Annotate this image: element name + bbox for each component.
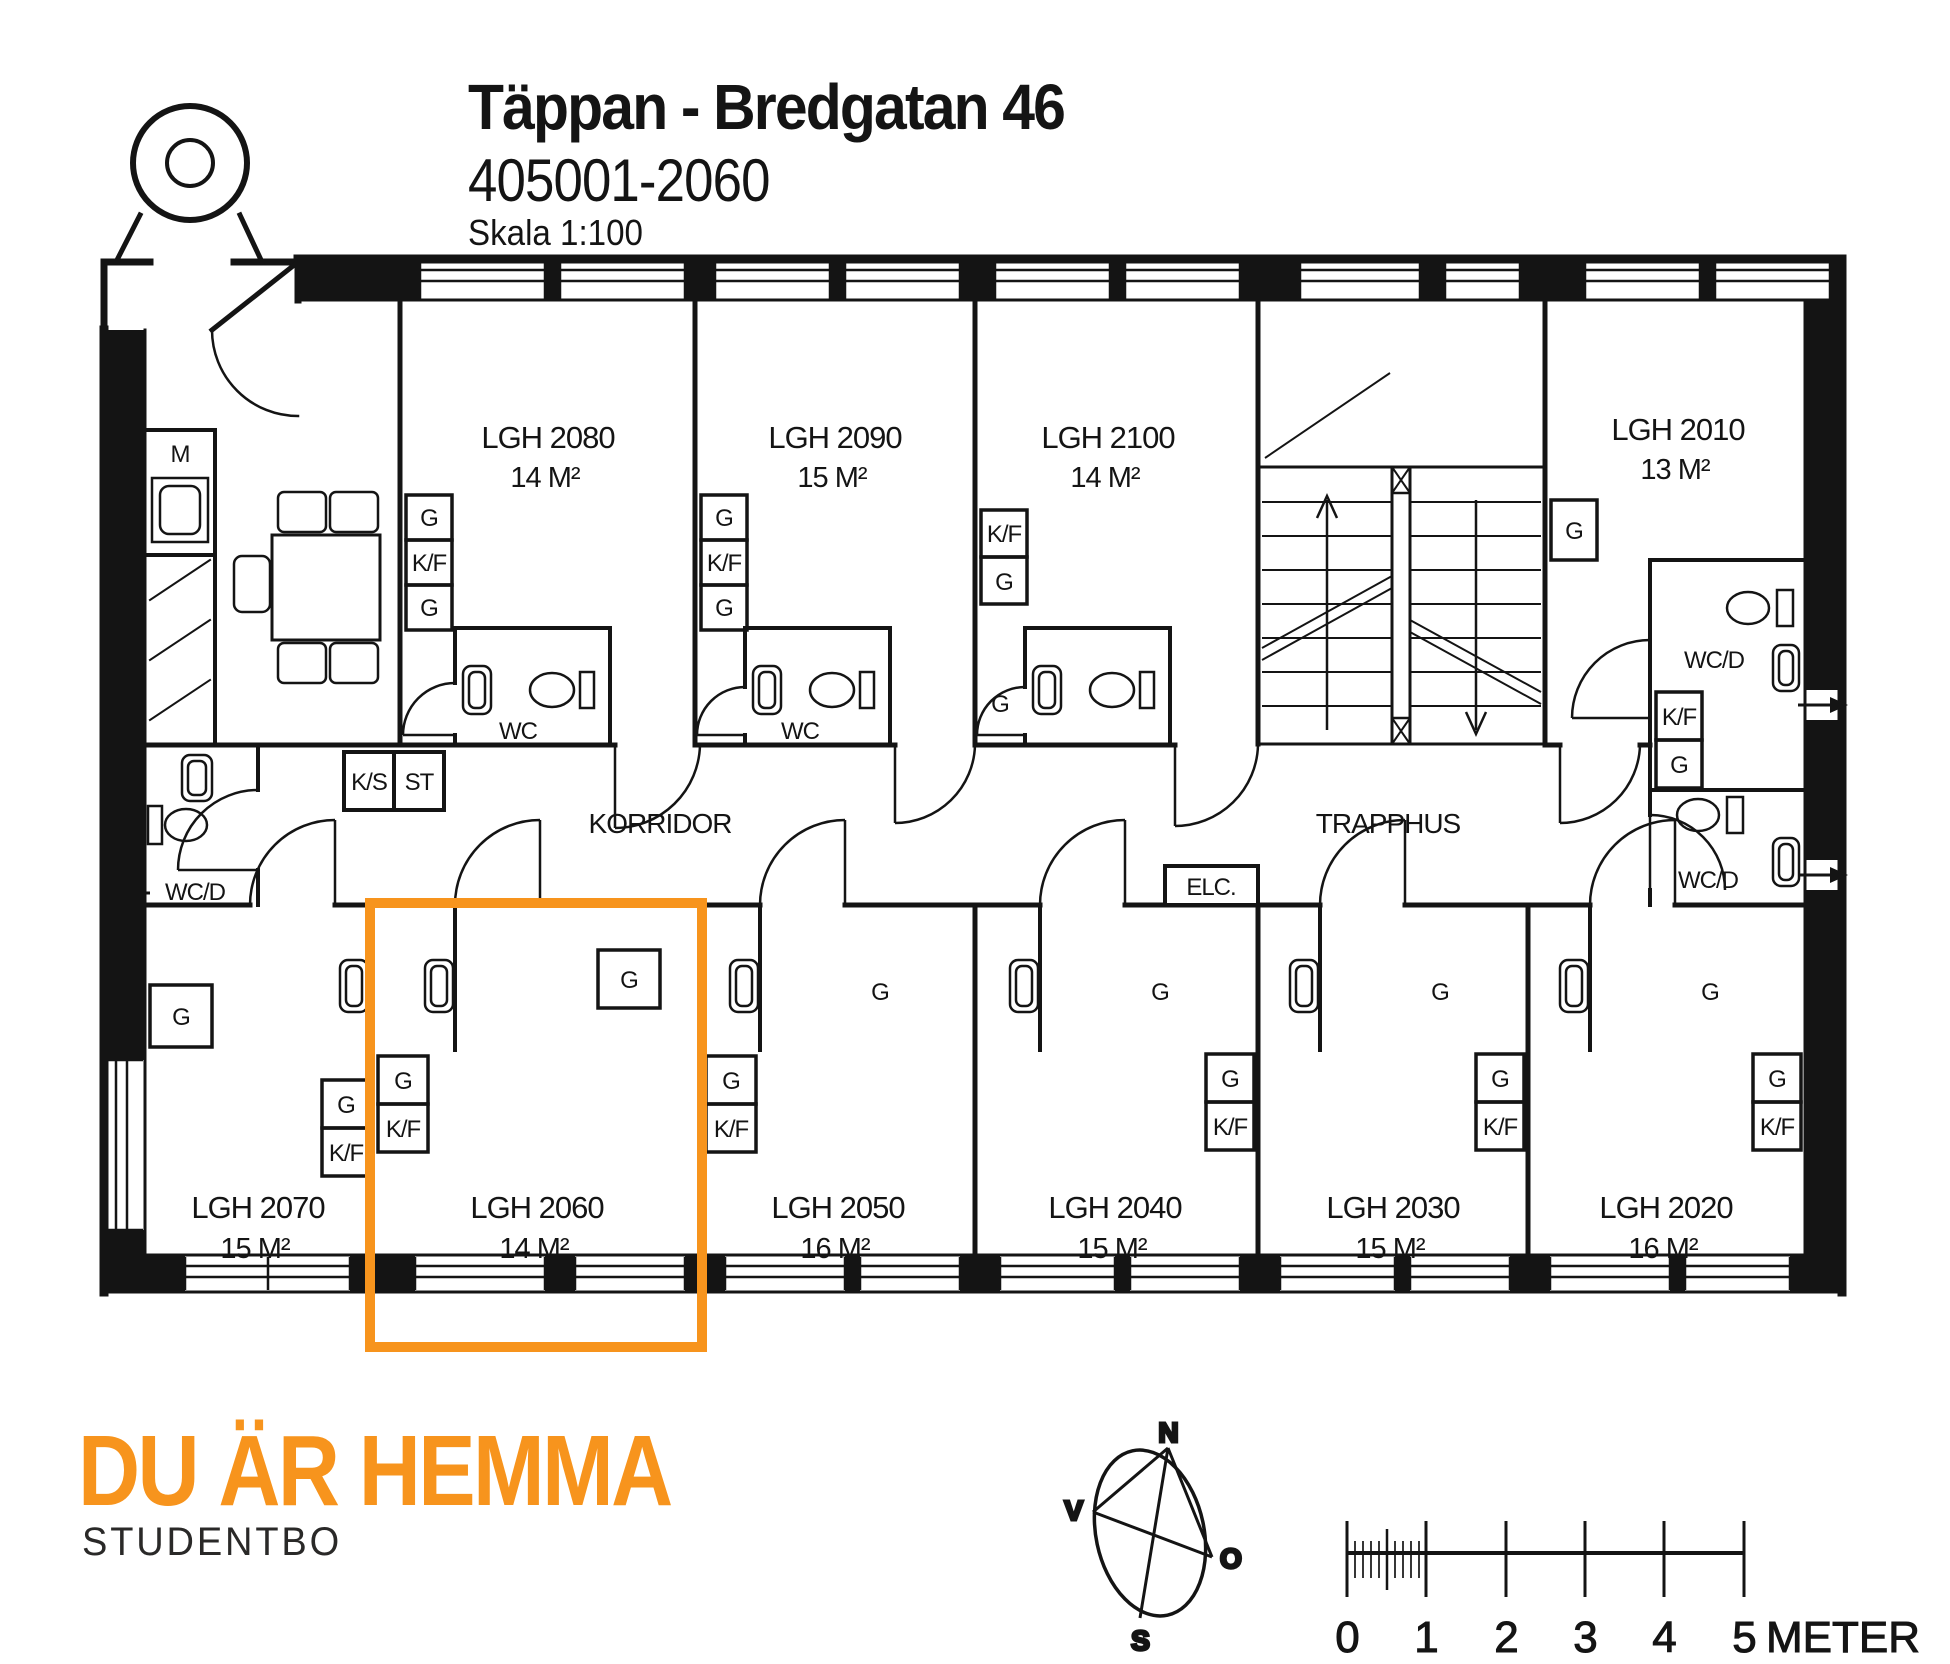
scale-tick-5: 5: [1732, 1613, 1755, 1662]
wcd-right-label: WC/D: [1678, 867, 1739, 894]
vestibule-door-arc: [212, 330, 298, 416]
svg-text:LGH 2030: LGH 2030: [1326, 1190, 1460, 1225]
closet-g-label: G: [1491, 1066, 1509, 1093]
compass-east-label: O: [1220, 1543, 1241, 1574]
closet-g-label: G: [722, 1068, 740, 1095]
svg-text:14 M²: 14 M²: [1070, 462, 1140, 494]
closet-kf-label: K/F: [1483, 1114, 1518, 1141]
chimney-round-element: [116, 106, 262, 262]
closet-g-label: G: [337, 1092, 355, 1119]
stair-break-lines: [1262, 373, 1541, 704]
svg-text:LGH 2050: LGH 2050: [771, 1190, 905, 1225]
compass: N V O S: [1064, 1417, 1241, 1656]
svg-text:LGH 2040: LGH 2040: [1048, 1190, 1182, 1225]
window-row-top: [420, 261, 1830, 299]
scale-bar: 0 1 2 3 4 5 METER: [1335, 1521, 1920, 1662]
closet-g-label: G: [620, 967, 638, 994]
closet-kf-label: K/F: [329, 1140, 364, 1167]
svg-text:LGH 2090: LGH 2090: [768, 420, 902, 455]
svg-text:14 M²: 14 M²: [510, 462, 580, 494]
scale-unit-label: METER: [1766, 1613, 1920, 1662]
apartment-label-lgh2080: LGH 2080 14 M²: [481, 420, 615, 494]
toilet-wc-2100: [1090, 672, 1154, 708]
closet-kf-label: K/F: [412, 550, 447, 577]
brand-sublabel: STUDENTBO: [82, 1520, 342, 1565]
closet-kf-label: K/F: [1213, 1114, 1248, 1141]
m-room-label: M: [171, 441, 190, 468]
compass-south-label: S: [1131, 1625, 1149, 1656]
vestibule-diagonal-wall: [212, 262, 298, 330]
closet-kf-label: K/F: [386, 1116, 421, 1143]
svg-text:LGH 2020: LGH 2020: [1599, 1190, 1733, 1225]
closet-g-label: G: [172, 1004, 190, 1031]
svg-text:LGH 2010: LGH 2010: [1611, 412, 1745, 447]
closet-kf-label: K/F: [1760, 1114, 1795, 1141]
toilet-wcd-left: [148, 806, 207, 844]
compass-west-label: V: [1064, 1495, 1083, 1526]
svg-text:13 M²: 13 M²: [1640, 454, 1710, 486]
svg-text:14 M²: 14 M²: [499, 1233, 569, 1265]
closet-g-label: G: [1221, 1066, 1239, 1093]
door-wc-2080: [403, 683, 455, 735]
closet-g-label: G: [715, 595, 733, 622]
svg-text:LGH 2100: LGH 2100: [1041, 420, 1175, 455]
svg-text:15 M²: 15 M²: [797, 462, 867, 494]
scale-tick-2: 2: [1494, 1613, 1517, 1662]
kitchen-table: [234, 492, 380, 683]
svg-text:15 M²: 15 M²: [1355, 1233, 1425, 1265]
wcd-2010-label: WC/D: [1684, 647, 1745, 674]
closet-g-label: G: [420, 595, 438, 622]
wc-label: WC: [499, 718, 538, 745]
washing-machine: [152, 478, 208, 542]
apartment-label-lgh2090: LGH 2090 15 M²: [768, 420, 902, 494]
closet-g-label: G: [1670, 752, 1688, 779]
scale-tick-1: 1: [1414, 1613, 1437, 1662]
scale-tick-4: 4: [1652, 1613, 1676, 1662]
door-lgh2050: [760, 820, 845, 905]
corridor-label: KORRIDOR: [589, 808, 732, 839]
closet-g-label: G: [1565, 518, 1583, 545]
brand-logo: DU ÄR HEMMA: [78, 1414, 671, 1529]
closet-st-label: ST: [405, 769, 435, 796]
door-lgh2070: [250, 820, 335, 905]
svg-text:LGH 2060: LGH 2060: [470, 1190, 604, 1225]
door-lgh2020: [1590, 820, 1675, 905]
closet-g-label: G: [1701, 979, 1719, 1006]
toilet-wc-2080: [530, 672, 594, 708]
door-lgh2060: [455, 820, 540, 905]
closet-g-label: G: [1768, 1066, 1786, 1093]
elc-label: ELC.: [1186, 874, 1235, 901]
door-lgh2090: [895, 745, 975, 823]
wcd-left-label: WC/D: [165, 879, 226, 906]
closet-g-label: G: [1151, 979, 1169, 1006]
closet-ks-label: K/S: [351, 769, 387, 796]
window-left-wall: [106, 1060, 143, 1230]
closet-g-label: G: [991, 691, 1009, 718]
svg-text:16 M²: 16 M²: [1628, 1233, 1698, 1265]
toilet-wc-2090: [810, 672, 874, 708]
svg-text:15 M²: 15 M²: [1077, 1233, 1147, 1265]
toilet-wcd-right: [1677, 797, 1743, 833]
closet-kf-label: K/F: [714, 1116, 749, 1143]
wc-label: WC: [781, 718, 820, 745]
floorplan-page: Täppan - Bredgatan 46 405001-2060 Skala …: [0, 0, 1950, 1664]
scale-tick-3: 3: [1573, 1613, 1596, 1662]
svg-text:16 M²: 16 M²: [800, 1233, 870, 1265]
closet-kf-label: K/F: [707, 550, 742, 577]
svg-text:LGH 2080: LGH 2080: [481, 420, 615, 455]
stairwell: [1258, 373, 1545, 744]
compass-north-label: N: [1158, 1417, 1177, 1448]
closet-g-label: G: [420, 505, 438, 532]
door-wcd-2010: [1572, 640, 1650, 718]
door-wc-2090: [697, 687, 745, 735]
closet-kf-label: K/F: [1662, 704, 1697, 731]
door-lgh2010: [1560, 745, 1640, 823]
toilet-wcd-2010: [1727, 590, 1793, 626]
apartment-label-lgh2100: LGH 2100 14 M²: [1041, 420, 1175, 494]
door-lgh2040: [1040, 820, 1125, 905]
svg-text:LGH 2070: LGH 2070: [191, 1190, 325, 1225]
apartment-label-lgh2010: LGH 2010 13 M²: [1611, 412, 1745, 486]
stair-treads: [1262, 502, 1541, 706]
svg-text:15 M²: 15 M²: [220, 1233, 290, 1265]
closet-g-label: G: [995, 569, 1013, 596]
closet-g-label: G: [394, 1068, 412, 1095]
stairwell-label: TRAPPHUS: [1316, 808, 1461, 839]
closet-kf-label: K/F: [987, 521, 1022, 548]
closet-g-label: G: [871, 979, 889, 1006]
shaft-hatch: [150, 560, 210, 720]
scale-tick-0: 0: [1335, 1613, 1358, 1662]
closet-g-label: G: [715, 505, 733, 532]
closet-g-label: G: [1431, 979, 1449, 1006]
door-lgh2100: [1175, 745, 1258, 826]
